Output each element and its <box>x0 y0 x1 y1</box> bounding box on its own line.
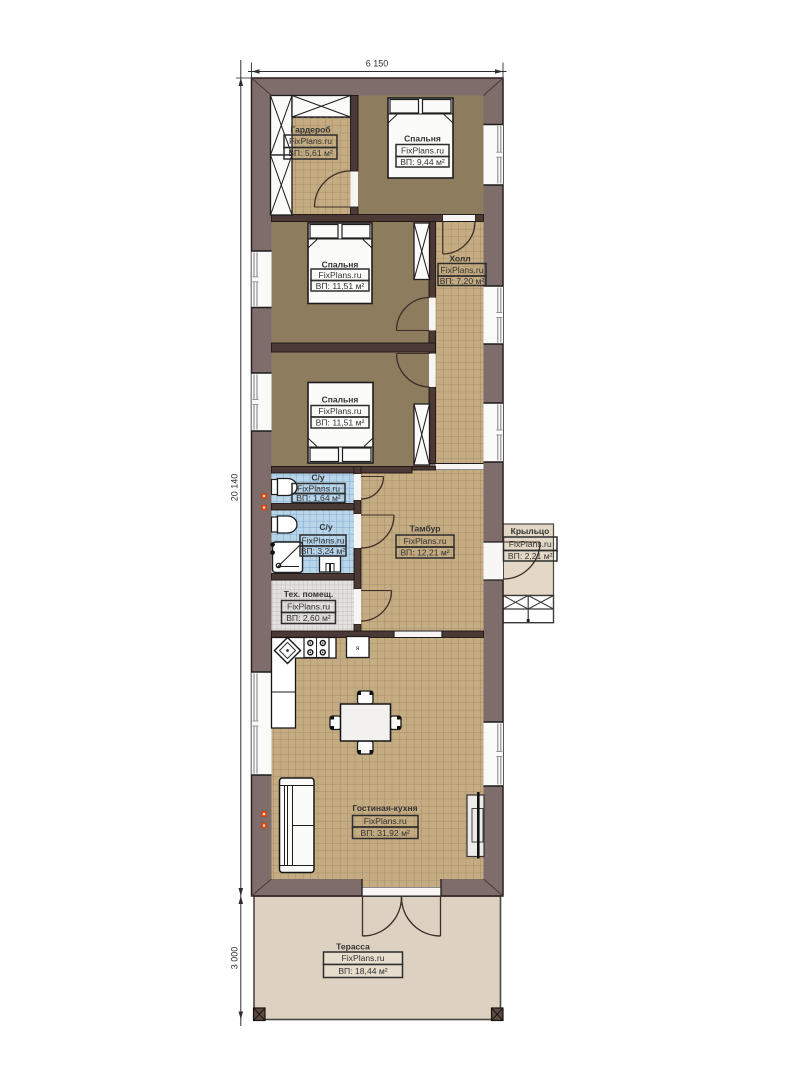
svg-text:ВП: 11,51 м²: ВП: 11,51 м² <box>316 281 365 291</box>
svg-text:ВП: 7,20 м²: ВП: 7,20 м² <box>440 276 485 286</box>
svg-text:Спальня: Спальня <box>322 395 359 405</box>
svg-text:Холл: Холл <box>449 254 470 264</box>
svg-text:FixPlans.ru: FixPlans.ru <box>302 536 345 546</box>
svg-text:ВП: 18,44 м²: ВП: 18,44 м² <box>338 966 387 976</box>
svg-text:ВП: 9,44 м²: ВП: 9,44 м² <box>400 157 445 167</box>
svg-text:FixPlans.ru: FixPlans.ru <box>342 953 385 963</box>
svg-text:FixPlans.ru: FixPlans.ru <box>319 406 362 416</box>
svg-text:Гостиная-кухня: Гостиная-кухня <box>352 803 417 813</box>
svg-text:Спальня: Спальня <box>322 260 359 270</box>
svg-text:ВП: 5,61 м²: ВП: 5,61 м² <box>288 148 333 158</box>
svg-text:FixPlans.ru: FixPlans.ru <box>297 484 340 494</box>
svg-text:Тамбур: Тамбур <box>410 524 441 534</box>
svg-text:ВП: 2,60 м²: ВП: 2,60 м² <box>286 613 331 623</box>
svg-text:FixPlans.ru: FixPlans.ru <box>441 265 484 275</box>
svg-text:FixPlans.ru: FixPlans.ru <box>287 602 330 612</box>
svg-text:ВП: 31,92 м²: ВП: 31,92 м² <box>361 828 410 838</box>
svg-text:20 140: 20 140 <box>230 474 240 502</box>
svg-text:С/у: С/у <box>319 522 333 532</box>
svg-text:FixPlans.ru: FixPlans.ru <box>289 136 332 146</box>
svg-text:ВП: 1,64 м²: ВП: 1,64 м² <box>296 493 341 503</box>
svg-text:3 000: 3 000 <box>230 947 240 970</box>
svg-text:ВП: 11,51 м²: ВП: 11,51 м² <box>316 418 365 428</box>
svg-text:Терасса: Терасса <box>336 942 370 952</box>
svg-text:FixPlans.ru: FixPlans.ru <box>509 539 552 549</box>
svg-text:FixPlans.ru: FixPlans.ru <box>404 536 447 546</box>
svg-text:я: я <box>356 645 360 652</box>
svg-text:FixPlans.ru: FixPlans.ru <box>319 270 362 280</box>
svg-text:Гардероб: Гардероб <box>290 125 330 135</box>
svg-text:Спальня: Спальня <box>404 134 441 144</box>
svg-text:Тех. помещ.: Тех. помещ. <box>284 589 334 599</box>
svg-text:Крыльцо: Крыльцо <box>511 526 550 536</box>
svg-text:FixPlans.ru: FixPlans.ru <box>401 146 444 156</box>
svg-text:ВП: 3,24 м²: ВП: 3,24 м² <box>301 546 346 556</box>
svg-text:ВП: 2,21 м²: ВП: 2,21 м² <box>508 551 553 561</box>
svg-text:ВП: 12,21 м²: ВП: 12,21 м² <box>400 548 449 558</box>
svg-text:С/у: С/у <box>311 473 325 483</box>
svg-text:FixPlans.ru: FixPlans.ru <box>364 816 407 826</box>
svg-text:6 150: 6 150 <box>366 59 389 69</box>
